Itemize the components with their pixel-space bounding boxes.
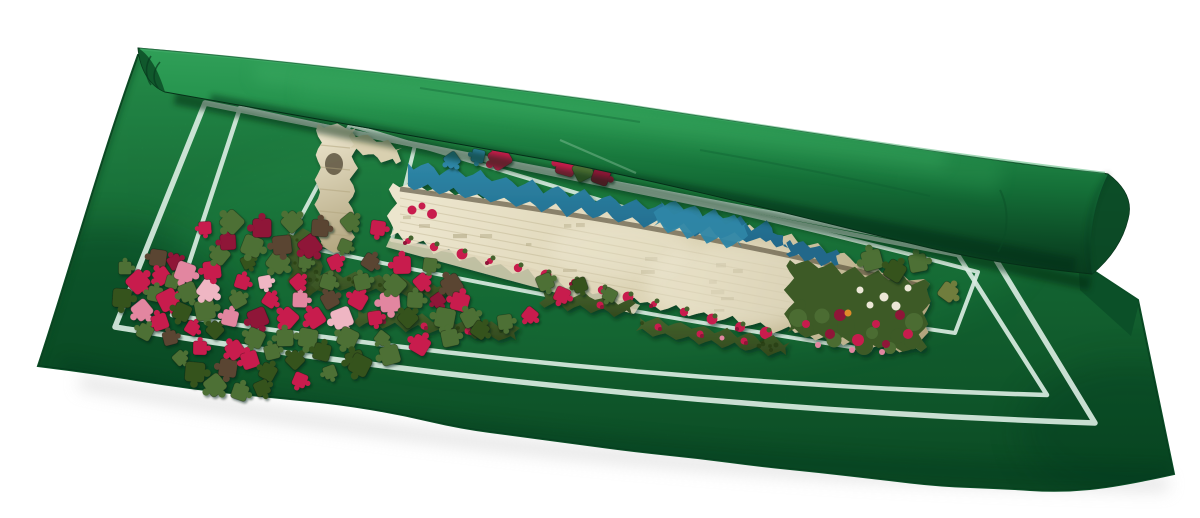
garden-bloom — [882, 340, 890, 348]
hedge-dot — [347, 277, 352, 282]
piece-body — [148, 248, 167, 267]
hedge-dot — [769, 348, 773, 352]
fringe-leaf — [741, 322, 746, 327]
piece-body — [370, 220, 387, 237]
brick — [419, 224, 430, 228]
strip-bloom-pink — [720, 336, 725, 341]
piece-knob-top — [123, 258, 128, 263]
garden-foliage — [815, 309, 830, 324]
fringe-bloom-deep — [403, 241, 407, 245]
wall-top-bloom — [427, 209, 437, 219]
piece-body — [311, 219, 329, 237]
piece-body — [367, 310, 383, 326]
piece-body — [119, 262, 132, 275]
fringe-leaf — [685, 307, 690, 312]
strip-bloom-deep — [658, 327, 662, 331]
daisy-cluster — [867, 302, 874, 309]
garden-bloom — [825, 329, 835, 339]
hedge-dot — [768, 344, 772, 348]
fringe-leaf — [409, 236, 414, 241]
hedge-dot — [308, 278, 313, 283]
garden-bloom — [802, 320, 810, 328]
piece-body — [352, 272, 371, 291]
brick — [403, 216, 411, 219]
garden-foliage — [905, 313, 923, 331]
garden-foliage — [891, 329, 906, 344]
piece-body — [193, 341, 207, 355]
brick — [453, 234, 467, 238]
hedge-dot — [757, 344, 762, 349]
fringe-bloom-deep — [735, 327, 739, 331]
hedge-dot — [295, 238, 298, 241]
strip-bloom-deep — [424, 326, 428, 330]
garden-bloom — [903, 329, 913, 339]
brick — [526, 243, 531, 246]
wall-top-bloom — [408, 206, 417, 215]
fringe-leaf — [629, 292, 634, 297]
wall-top-bloom — [419, 203, 426, 210]
fringe-leaf — [767, 328, 772, 333]
piece-body — [440, 328, 460, 348]
fringe-leaf — [435, 242, 440, 247]
garden-bloom — [872, 320, 880, 328]
strip-bloom-deep — [744, 341, 748, 345]
fringe-leaf — [519, 263, 524, 268]
scene-canvas — [0, 0, 1200, 518]
hedge-dot — [315, 278, 318, 281]
brick — [480, 234, 492, 238]
strip-bloom-deep — [600, 305, 604, 309]
orange-bloom — [845, 310, 852, 317]
fringe-bloom-deep — [485, 261, 489, 265]
fringe-leaf — [655, 299, 660, 304]
piece-body — [161, 329, 178, 346]
piece-knob-top — [247, 224, 254, 231]
daisy-cluster — [880, 293, 889, 302]
fringe-leaf — [463, 249, 468, 254]
piece-body — [220, 308, 239, 327]
piece-knob-side — [130, 266, 135, 271]
piece-body — [312, 342, 333, 363]
piece-body — [220, 234, 237, 251]
pink-bloom — [849, 347, 855, 353]
piece-body — [253, 219, 272, 238]
strip-bloom-deep — [700, 334, 704, 338]
fringe-bloom-deep — [649, 304, 653, 308]
garden-foliage — [794, 299, 806, 311]
hedge-dot — [774, 343, 779, 348]
column-arch-shadow — [325, 153, 343, 175]
puzzle-mat-product-photo — [0, 0, 1200, 518]
piece-body — [112, 288, 132, 308]
piece-body — [257, 274, 272, 289]
daisy-cluster — [905, 285, 912, 292]
piece-body — [184, 361, 206, 383]
fringe-leaf — [491, 256, 496, 261]
piece-body — [218, 358, 239, 379]
piece-body — [497, 314, 514, 331]
daisy-cluster — [857, 287, 864, 294]
piece-body — [198, 221, 212, 235]
pink-bloom — [879, 349, 885, 355]
piece-body — [422, 257, 438, 273]
fringe-leaf — [713, 314, 718, 319]
hedge-dot — [378, 283, 382, 287]
hedge-dot — [640, 321, 644, 325]
garden-bloom — [834, 309, 846, 321]
daisy-cluster — [892, 302, 901, 311]
piece-body — [292, 292, 308, 308]
piece-body — [393, 256, 411, 274]
hedge-dot — [761, 342, 765, 346]
piece-knob-side — [258, 213, 265, 220]
garden-foliage — [866, 327, 878, 339]
hedge-dot — [293, 261, 296, 264]
piece-body — [407, 292, 424, 309]
piece-body — [272, 235, 293, 256]
piece-body — [276, 329, 294, 347]
garden-bloom — [852, 334, 864, 346]
pink-bloom — [815, 342, 821, 348]
piece-body — [193, 298, 216, 321]
garden-bloom — [895, 310, 905, 320]
hedge-dot — [314, 270, 319, 275]
